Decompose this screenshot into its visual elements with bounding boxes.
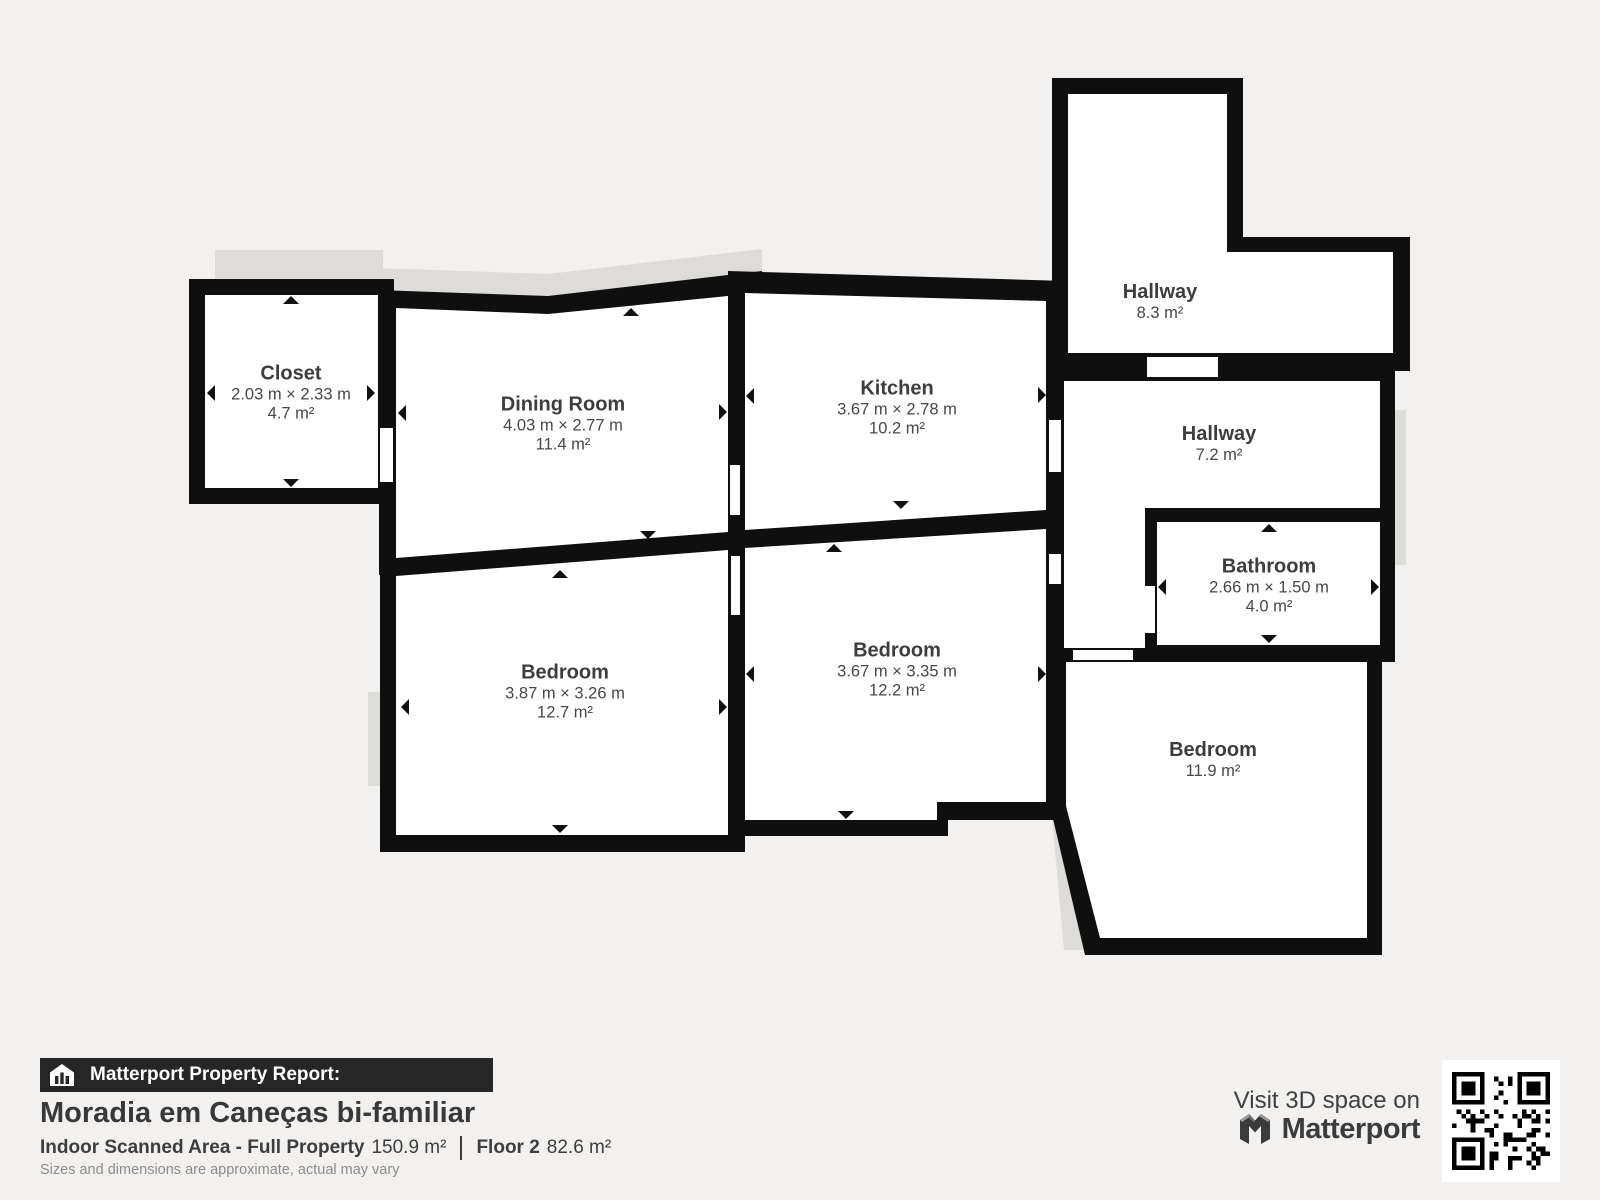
area-summary-row: Indoor Scanned Area - Full Property 150.… bbox=[40, 1136, 611, 1160]
matterport-logo: Matterport bbox=[1237, 1112, 1420, 1146]
door-bedroom-hallway bbox=[1049, 554, 1061, 584]
door-dining-kitchen bbox=[730, 465, 740, 515]
floor-bedroom-left bbox=[396, 550, 728, 835]
floor-closet bbox=[205, 295, 378, 488]
door-kitchen-hallway bbox=[1049, 420, 1061, 472]
qr-code bbox=[1452, 1072, 1550, 1170]
visit-3d-text: Visit 3D space on bbox=[1234, 1087, 1420, 1115]
floor-label: Floor 2 bbox=[476, 1137, 539, 1159]
floor-bedroom-middle bbox=[745, 529, 1046, 820]
door-closet-dining bbox=[380, 428, 393, 482]
report-bar-label: Matterport Property Report: bbox=[90, 1064, 340, 1086]
matterport-m-icon bbox=[1237, 1112, 1273, 1146]
floor-dining bbox=[396, 296, 728, 558]
disclaimer-text: Sizes and dimensions are approximate, ac… bbox=[40, 1162, 399, 1178]
floor-value: 82.6 m² bbox=[547, 1137, 611, 1159]
qr-code-card bbox=[1442, 1060, 1560, 1182]
door-hallway-bedroom-right bbox=[1073, 650, 1133, 660]
floor-bedroom-right bbox=[1066, 662, 1367, 938]
door-bedrooms bbox=[731, 556, 740, 615]
property-report-icon bbox=[50, 1064, 74, 1086]
divider bbox=[460, 1136, 462, 1160]
property-report-page: Closet2.03 m × 2.33 m4.7 m²Dining Room4.… bbox=[0, 0, 1600, 1200]
door-bathroom bbox=[1145, 586, 1155, 633]
matterport-wordmark: Matterport bbox=[1282, 1113, 1420, 1146]
scanned-area-label: Indoor Scanned Area - Full Property bbox=[40, 1137, 364, 1159]
scanned-area-value: 150.9 m² bbox=[371, 1137, 446, 1159]
floorplan-drawing bbox=[0, 0, 1600, 1200]
property-title: Moradia em Caneças bi-familiar bbox=[40, 1097, 475, 1130]
report-header-bar: Matterport Property Report: bbox=[40, 1058, 493, 1092]
door-hallway-hallway bbox=[1147, 357, 1218, 377]
floor-bathroom bbox=[1157, 522, 1380, 645]
floor-kitchen bbox=[745, 293, 1046, 530]
